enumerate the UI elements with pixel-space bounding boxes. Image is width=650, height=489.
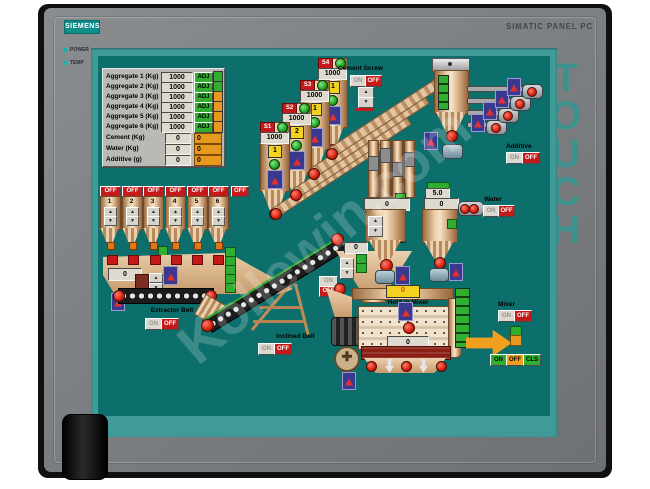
screen-frame: Aggregate 1 (Kg) 1000 ADJ Aggregate 2 (K…	[91, 48, 557, 437]
hopper-down-button[interactable]: ▼	[212, 216, 225, 226]
hmi-display[interactable]: Aggregate 1 (Kg) 1000 ADJ Aggregate 2 (K…	[98, 56, 550, 416]
param-label: Aggregate 1 (Kg)	[106, 72, 158, 81]
hopper-cone	[165, 228, 184, 242]
weigh-hopper-sensor	[192, 255, 203, 265]
screw-drive	[326, 148, 338, 160]
hopper-cone	[122, 228, 141, 242]
silo-badge: 2	[290, 126, 304, 139]
mixer-label: Mixer	[498, 300, 534, 309]
hopper-cone	[208, 228, 227, 242]
cement-screw-down-button[interactable]: ▼	[358, 97, 374, 108]
silo-cap-bolt	[448, 62, 452, 66]
water-label: Water	[484, 195, 514, 204]
hopper-down-button[interactable]: ▼	[126, 216, 139, 226]
gate-off-button[interactable]: OFF	[506, 354, 524, 366]
hopper-outlet	[215, 242, 223, 250]
screw-drive	[308, 168, 320, 180]
param-label: Aggregate 2 (Kg)	[106, 82, 158, 91]
param-label: Additive (g)	[106, 155, 142, 164]
discharge-valve	[436, 361, 447, 372]
hopper-cone	[187, 228, 206, 242]
status-circle	[291, 140, 302, 151]
gate-closed-indicator	[510, 335, 522, 346]
pump-rotor	[515, 99, 525, 109]
mixer-valve	[403, 322, 415, 334]
mixer-top-value[interactable]: 0	[386, 285, 420, 298]
cement-screw-off-button[interactable]: OFF	[365, 75, 382, 87]
stylus-grommet	[62, 414, 108, 480]
silo-badge: 1	[268, 145, 282, 158]
hopper-outlet	[107, 242, 115, 250]
cement-screw-on-button[interactable]: ON	[350, 75, 366, 87]
weigh-hopper-up-button[interactable]: ▲	[149, 273, 163, 283]
hopper-outlet	[129, 242, 137, 250]
param-label: Aggregate 5 (Kg)	[106, 112, 158, 121]
weigh-hopper-sensor	[150, 255, 161, 265]
param-label: Aggregate 6 (Kg)	[106, 122, 158, 131]
gate-on-button[interactable]: ON	[490, 354, 507, 366]
cement-screw-indicator	[356, 108, 374, 111]
vibrator-icon	[449, 263, 463, 281]
vibrator-icon	[395, 266, 410, 285]
vibrator-icon	[398, 302, 413, 321]
adj-button[interactable]: ADJ	[194, 122, 213, 133]
handwheel-icon: ✚	[334, 346, 360, 372]
param-value[interactable]: 1000	[161, 122, 193, 133]
discharge-valve	[401, 361, 412, 372]
water-off-button[interactable]: OFF	[498, 205, 515, 217]
hopper-number: 1	[100, 197, 119, 206]
cement-pump	[375, 270, 395, 284]
hopper-down-button[interactable]: ▼	[147, 216, 160, 226]
temp-led	[63, 61, 67, 65]
hopper-number: 5	[187, 197, 206, 206]
product-photo: SIEMENS POWER TEMP SIMATIC PANEL PC TOUC…	[0, 0, 650, 489]
vibrator-icon	[342, 372, 356, 390]
power-led	[63, 48, 67, 52]
belt-roller	[113, 290, 125, 302]
weigh-hopper-sensor	[107, 255, 118, 265]
hopper-down-button[interactable]: ▼	[104, 216, 117, 226]
discharge-valve	[366, 361, 377, 372]
vibrator-icon	[289, 151, 305, 170]
actual-value: 0	[194, 133, 222, 144]
param-value[interactable]: 0	[165, 155, 191, 166]
hopper-number: 2	[122, 197, 141, 206]
additive-on-button[interactable]: ON	[506, 152, 523, 164]
vibrator-icon	[267, 170, 283, 189]
siemens-logo: SIEMENS	[64, 20, 100, 34]
level-indicator	[356, 263, 367, 273]
hopper-outlet	[194, 242, 202, 250]
model-label: SIMATIC PANEL PC	[498, 22, 593, 32]
hopper-outlet	[150, 242, 158, 250]
screw-drive	[290, 189, 302, 201]
cement-screw-label: Cement Screw	[338, 64, 408, 73]
hopper-outlet	[172, 242, 180, 250]
mixer-inlet-funnel	[326, 288, 352, 318]
hopper-down-button[interactable]: ▼	[191, 216, 204, 226]
setpoint-panel: Aggregate 1 (Kg) 1000 ADJ Aggregate 2 (K…	[102, 68, 225, 167]
hopper-number: 3	[143, 197, 162, 206]
water-drain-pump	[429, 268, 449, 282]
param-label: Water (Kg)	[106, 144, 139, 153]
mixer-discharge-tray	[361, 346, 451, 360]
weigh-hopper-sensor	[128, 255, 139, 265]
silo-value[interactable]: 1000	[300, 90, 329, 102]
vibrator-icon	[507, 78, 521, 96]
aggregate-hopper-2: OFF 2 ▲ ▼	[122, 186, 143, 248]
param-label: Cement (Kg)	[106, 133, 145, 142]
mixer-off-button[interactable]: OFF	[514, 310, 532, 322]
hopper-number: 6	[208, 197, 227, 206]
inclined-belt-off-button[interactable]: OFF	[274, 343, 292, 355]
param-value[interactable]: 0	[165, 133, 191, 144]
level-indicator	[447, 219, 457, 229]
hopper-down-button[interactable]: ▼	[169, 216, 182, 226]
status-circle	[269, 159, 280, 170]
hopper-cone	[100, 228, 119, 242]
extra-off-button[interactable]: OFF	[231, 186, 249, 197]
actual-value: 0	[194, 155, 222, 166]
gate-cls-button[interactable]: CLS	[523, 354, 541, 366]
status-square	[213, 121, 223, 133]
weigh-hopper-sensor	[171, 255, 182, 265]
aggregate-hopper-6: OFF 6 ▲ ▼	[208, 186, 229, 248]
water-on-button[interactable]: ON	[483, 205, 499, 217]
aggregate-hopper-4: OFF 4 ▲ ▼	[165, 186, 186, 248]
actual-value: 0	[194, 144, 222, 155]
aggregate-hopper-1: OFF 1 ▲ ▼	[100, 186, 121, 248]
pump-rotor	[527, 87, 537, 97]
silo-value[interactable]: 1000	[260, 132, 289, 144]
weigh-hopper-sensor	[213, 255, 224, 265]
pump-rotor	[469, 204, 479, 214]
hopper-number: 4	[165, 197, 184, 206]
param-label: Aggregate 3 (Kg)	[106, 92, 158, 101]
param-label: Aggregate 4 (Kg)	[106, 102, 158, 111]
screw-drive	[270, 208, 282, 220]
aggregate-hopper-3: OFF 3 ▲ ▼	[143, 186, 164, 248]
param-value[interactable]: 0	[165, 144, 191, 155]
mixer-on-button[interactable]: ON	[498, 310, 515, 322]
vibrator-icon	[163, 266, 178, 285]
additive-label: Additive	[506, 142, 542, 151]
hopper-cone	[143, 228, 162, 242]
additive-off-button[interactable]: OFF	[522, 152, 540, 164]
inclined-belt-on-button[interactable]: ON	[258, 343, 275, 355]
aggregate-hopper-5: OFF 5 ▲ ▼	[187, 186, 208, 248]
